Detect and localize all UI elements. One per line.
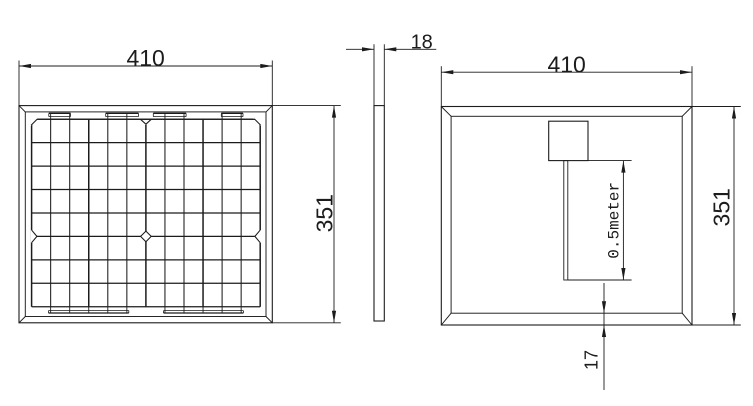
svg-text:18: 18 (411, 31, 433, 53)
svg-text:17: 17 (581, 350, 601, 370)
svg-text:351: 351 (709, 188, 735, 226)
svg-text:410: 410 (547, 51, 585, 77)
svg-text:351: 351 (311, 194, 337, 232)
svg-text:0.5meter: 0.5meter (606, 182, 624, 259)
svg-text:410: 410 (126, 45, 164, 71)
